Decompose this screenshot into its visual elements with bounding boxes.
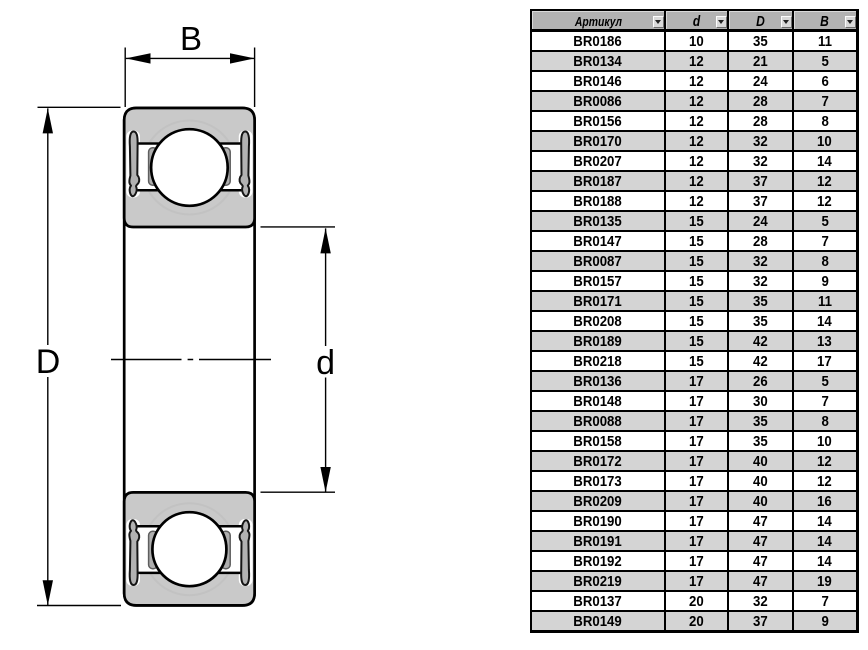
svg-text:B: B <box>180 20 202 57</box>
svg-text:D: D <box>36 343 61 381</box>
svg-text:d: d <box>316 344 335 382</box>
